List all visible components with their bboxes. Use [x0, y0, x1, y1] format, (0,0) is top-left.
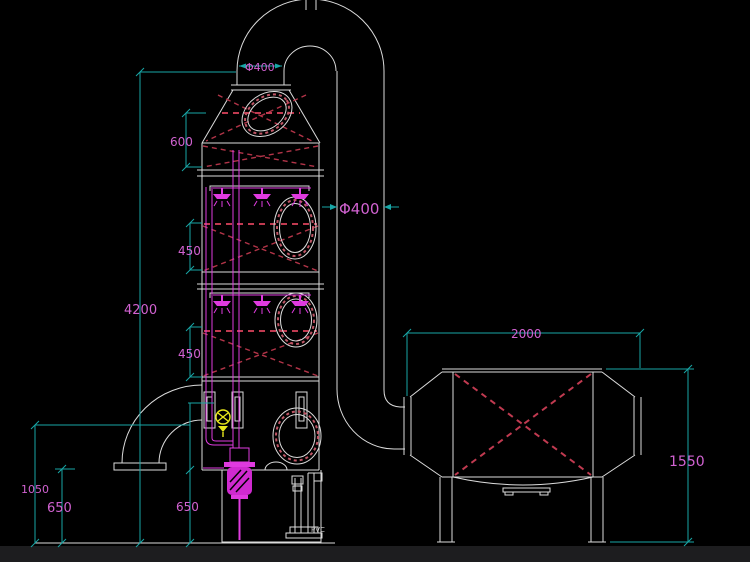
dim-adsorber-length: 2000	[511, 327, 542, 341]
dim-packing1-height: 450	[178, 244, 201, 258]
dim-cone-height: 600	[170, 135, 193, 149]
dim-outlet-height: 1050	[21, 483, 49, 496]
bottom-border-strip	[0, 546, 750, 562]
dim-duct-diameter: Φ400	[339, 200, 379, 218]
dim-stack-diameter: Φ400	[245, 61, 275, 74]
dim-clearance-left: 650	[47, 501, 72, 516]
cad-drawing-canvas: Φ400 Φ400 600 450 450 4200 1050 650 650 …	[0, 0, 750, 562]
dim-tower-height: 4200	[124, 303, 157, 318]
dim-packing2-height: 450	[178, 347, 201, 361]
dim-adsorber-height: 1550	[669, 454, 705, 470]
scrubber-system-drawing: Φ400 Φ400 600 450 450 4200 1050 650 650 …	[0, 0, 750, 562]
dim-clearance-right: 650	[176, 500, 199, 514]
pump-material-label: PVC	[311, 526, 325, 534]
